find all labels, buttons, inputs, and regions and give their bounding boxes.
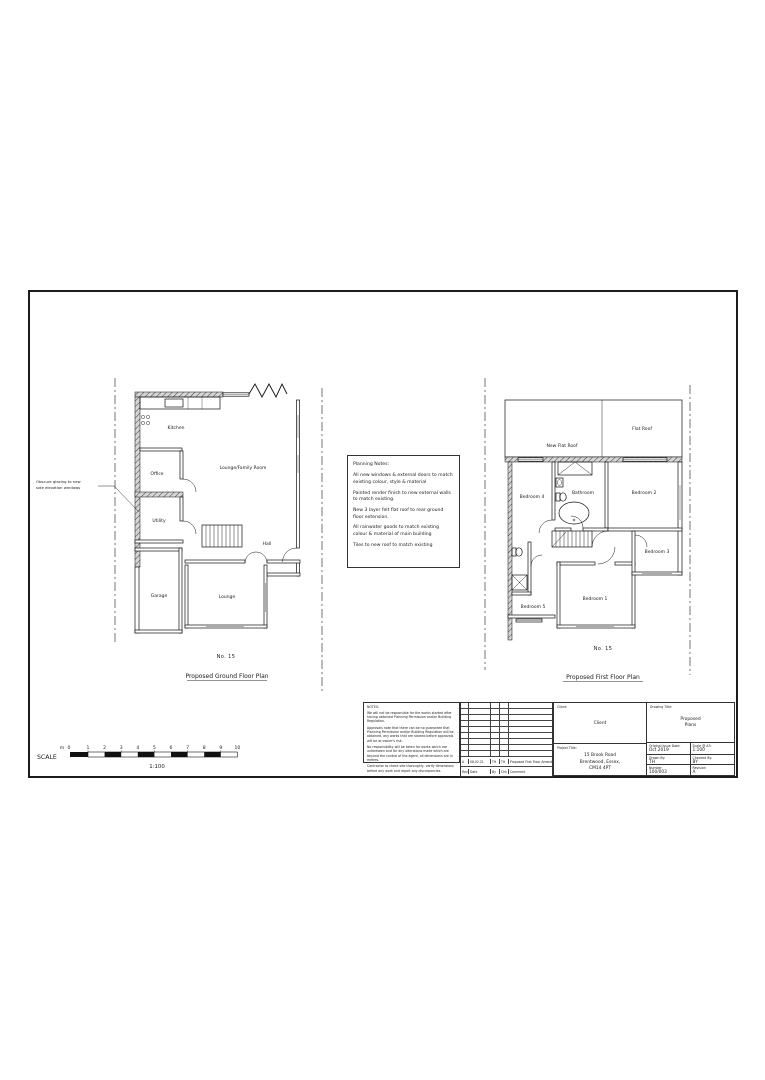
drawing-title-cell: Drawing Title: Proposed Plans bbox=[647, 703, 734, 743]
toilet-icon bbox=[512, 548, 516, 556]
room-label-bedroom5: Bedroom 5 bbox=[521, 604, 546, 610]
planning-note: All new windows & external doors to matc… bbox=[353, 473, 454, 486]
planning-note: New 3 layer felt flat roof to rear groun… bbox=[353, 508, 454, 521]
break-line bbox=[249, 384, 287, 397]
room-label-bedroom3: Bedroom 3 bbox=[645, 549, 670, 555]
drawing-sheet: Obscure glazing to new side elevation wi… bbox=[28, 290, 738, 778]
first-plan-house-number: No. 15 bbox=[594, 646, 613, 652]
address-line: CM14 4PT bbox=[554, 766, 646, 772]
rev-date: 06.02.21 bbox=[469, 759, 491, 764]
scale-tick: 0 bbox=[68, 745, 71, 751]
project-title-cell: Project Title: 15 Brook Road Brentwood, … bbox=[554, 744, 646, 775]
label-new-flat-roof: New Flat Roof bbox=[546, 443, 577, 449]
client-value: Client bbox=[554, 721, 646, 726]
scale-unit: m bbox=[60, 746, 65, 751]
title-block: Client: Client Project Title: 15 Brook R… bbox=[553, 702, 735, 776]
field-revision: Revision A bbox=[691, 765, 735, 775]
kitchen-counter-and-sink bbox=[140, 397, 220, 425]
bathroom-fixtures bbox=[556, 478, 589, 524]
ground-plan-stairs bbox=[202, 525, 242, 547]
first-plan-stairs bbox=[552, 531, 592, 547]
roof-outline bbox=[505, 400, 682, 457]
client-cell: Client: Client bbox=[554, 703, 646, 744]
planning-note: Tiles to new roof to match existing bbox=[353, 543, 454, 549]
toilet-icon bbox=[556, 493, 560, 501]
room-label-bedroom4: Bedroom 4 bbox=[520, 494, 545, 500]
scale-tick: 9 bbox=[219, 745, 222, 751]
wc-fixtures bbox=[512, 548, 527, 590]
scale-ratio: 1:100 bbox=[149, 764, 165, 770]
room-label-hall: Hall bbox=[263, 541, 272, 547]
project-address: 15 Brook Road Brentwood, Essex, CM14 4PT bbox=[554, 753, 646, 772]
notes-title: NOTES: bbox=[367, 705, 456, 709]
rev-header-date: Date bbox=[469, 769, 491, 774]
rev-id: A bbox=[461, 759, 469, 764]
drawing-title-value: Proposed Plans bbox=[647, 717, 734, 730]
hob-ring-icon bbox=[146, 421, 149, 424]
note-paragraph: We will not be responsible for the works… bbox=[367, 711, 456, 723]
scale-bar: SCALE m 0 1 2 3 4 5 6 7 8 9 10 bbox=[35, 740, 257, 774]
note-paragraph: Approvals note that there can be no guar… bbox=[367, 726, 456, 743]
first-floor-plan: New Flat Roof Flat Roof Bedroom 4 Bathro… bbox=[470, 370, 720, 700]
scale-tick: 10 bbox=[234, 745, 240, 751]
hob-ring-icon bbox=[146, 415, 149, 418]
room-label-kitchen: Kitchen bbox=[168, 425, 185, 431]
first-plan-caption: Proposed First Floor Plan bbox=[566, 674, 640, 681]
first-plan-room-labels: New Flat Roof Flat Roof Bedroom 4 Bathro… bbox=[520, 426, 670, 610]
field-checked-by: Checked By: BY bbox=[691, 755, 735, 765]
planning-note: All rainwater goods to match existing co… bbox=[353, 525, 454, 538]
room-label-office: Office bbox=[150, 471, 163, 477]
client-label: Client: bbox=[557, 705, 643, 709]
room-label-utility: Utility bbox=[152, 518, 166, 524]
scale-tick: 4 bbox=[136, 745, 139, 751]
rev-comment: Proposed First Floor Amended bbox=[509, 759, 552, 764]
revision-row-a: A 06.02.21 TH TH Proposed First Floor Am… bbox=[461, 757, 552, 767]
drawing-title-line: Plans bbox=[647, 723, 734, 730]
note-paragraph: No responsibility will be taken for work… bbox=[367, 745, 456, 762]
first-plan-boundary-lines bbox=[485, 378, 690, 675]
field-drawn-by: Drawn By: TH bbox=[647, 755, 691, 765]
field-issue-date: Original Issue Date: Oct 2019 bbox=[647, 743, 691, 755]
obscure-glazing-annotation: Obscure glazing to new side elevation wi… bbox=[36, 479, 139, 512]
scanned-drawing-page: Obscure glazing to new side elevation wi… bbox=[0, 0, 765, 1080]
rev-by: TH bbox=[491, 759, 500, 764]
scale-tick: 6 bbox=[170, 745, 173, 751]
room-label-garage: Garage bbox=[151, 593, 168, 599]
rev-header-by: By bbox=[491, 769, 500, 774]
room-label-bedroom2: Bedroom 2 bbox=[632, 490, 657, 496]
planning-note: Painted render finish to new external wa… bbox=[353, 491, 454, 504]
rev-header-chk: Chk bbox=[500, 769, 509, 774]
title-block-fields: Original Issue Date: Oct 2019 Scale @ A3… bbox=[647, 743, 734, 775]
scale-tick: 2 bbox=[103, 745, 106, 751]
scale-tick: 8 bbox=[203, 745, 206, 751]
scale-tick: 5 bbox=[153, 745, 156, 751]
rev-header-comment: Comment bbox=[509, 769, 552, 774]
note-paragraph: Contractor to check site thoroughly, ver… bbox=[367, 764, 456, 772]
annotation-line-2: side elevation windows bbox=[36, 485, 80, 490]
airing-cupboard bbox=[558, 462, 592, 475]
rev-chk: TH bbox=[500, 759, 509, 764]
rev-header-rev: Rev bbox=[461, 769, 469, 774]
bath-icon bbox=[559, 502, 589, 524]
scale-tick: 3 bbox=[120, 745, 123, 751]
project-title-label: Project Title: bbox=[557, 746, 643, 750]
notes-block: NOTES: We will not be responsible for th… bbox=[363, 702, 460, 763]
ground-plan-doors bbox=[183, 479, 297, 563]
ground-floor-plan: Obscure glazing to new side elevation wi… bbox=[30, 370, 330, 700]
ground-plan-house-number: No. 15 bbox=[217, 654, 236, 660]
hob-ring-icon bbox=[141, 421, 144, 424]
revision-table: A 06.02.21 TH TH Proposed First Floor Am… bbox=[460, 702, 553, 777]
first-plan-walls bbox=[505, 457, 682, 640]
scale-bar-graphic bbox=[70, 751, 237, 758]
ground-plan-caption: Proposed Ground Floor Plan bbox=[185, 673, 268, 680]
revision-header-row: Rev Date By Chk Comment bbox=[461, 767, 552, 776]
room-label-lounge-family: Lounge/Family Room bbox=[220, 465, 267, 471]
hob-ring-icon bbox=[141, 415, 144, 418]
room-label-lounge: Lounge bbox=[219, 594, 236, 600]
scale-tick: 7 bbox=[186, 745, 189, 751]
annotation-line-1: Obscure glazing to new bbox=[36, 479, 81, 484]
scale-label: SCALE bbox=[37, 754, 57, 761]
field-scale: Scale @ A3: 1:100 bbox=[691, 743, 735, 755]
scale-tick: 1 bbox=[87, 745, 90, 751]
room-label-bedroom1: Bedroom 1 bbox=[583, 596, 608, 602]
drawing-title-label: Drawing Title: bbox=[650, 705, 731, 709]
room-label-bathroom: Bathroom bbox=[572, 490, 594, 496]
label-flat-roof: Flat Roof bbox=[632, 426, 652, 432]
field-number: Number 100/003 bbox=[647, 765, 691, 775]
planning-notes-title: Planning Notes: bbox=[353, 462, 454, 468]
planning-notes-box: Planning Notes: All new windows & extern… bbox=[347, 455, 460, 568]
